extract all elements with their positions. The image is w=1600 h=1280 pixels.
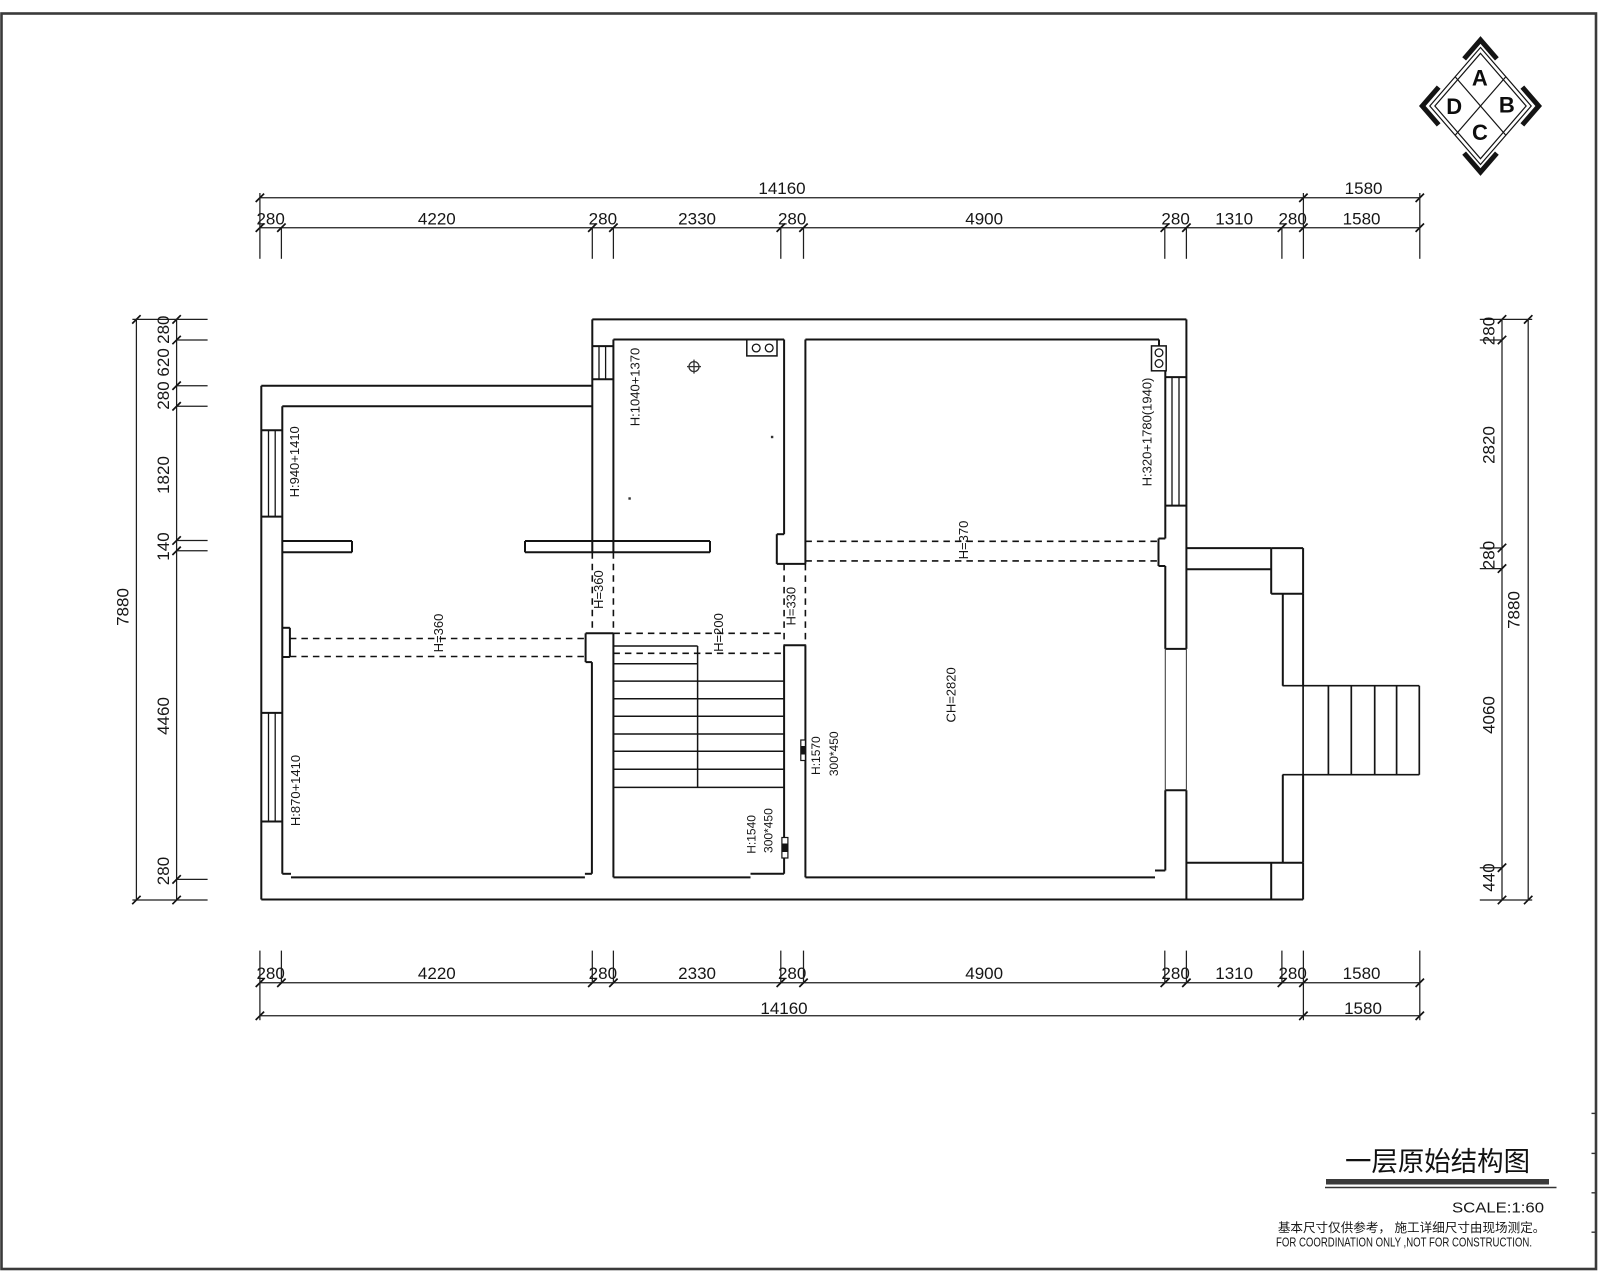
svg-text:H:1540: H:1540	[745, 815, 759, 854]
svg-text:280: 280	[778, 964, 806, 983]
svg-text:H:870+1410: H:870+1410	[288, 755, 303, 826]
svg-text:2820: 2820	[1480, 426, 1499, 464]
svg-text:C: C	[1472, 120, 1488, 145]
svg-text:620: 620	[154, 348, 173, 376]
svg-text:H=360: H=360	[591, 570, 606, 609]
svg-text:1580: 1580	[1343, 210, 1381, 229]
svg-text:4220: 4220	[418, 964, 456, 983]
svg-text:A: A	[1472, 66, 1488, 91]
svg-text:D: D	[1446, 94, 1462, 119]
svg-text:4900: 4900	[965, 964, 1003, 983]
svg-text:1820: 1820	[154, 456, 173, 494]
svg-text:1580: 1580	[1344, 999, 1382, 1018]
svg-text:280: 280	[1278, 964, 1306, 983]
svg-text:280: 280	[1480, 317, 1499, 345]
svg-text:2330: 2330	[678, 210, 716, 229]
svg-text:1580: 1580	[1345, 179, 1383, 198]
svg-text:4060: 4060	[1480, 696, 1499, 734]
svg-text:280: 280	[1161, 210, 1189, 229]
svg-text:H=330: H=330	[783, 587, 798, 626]
svg-text:7880: 7880	[1505, 591, 1524, 629]
svg-text:440: 440	[1480, 863, 1499, 891]
svg-text:4220: 4220	[418, 210, 456, 229]
svg-text:7880: 7880	[114, 588, 133, 626]
svg-text:1310: 1310	[1215, 210, 1253, 229]
svg-text:4460: 4460	[154, 697, 173, 735]
svg-text:300*450: 300*450	[827, 731, 841, 776]
svg-text:H:320+1780(1940): H:320+1780(1940)	[1140, 378, 1155, 487]
svg-text:SCALE:1:60: SCALE:1:60	[1452, 1200, 1544, 1217]
svg-text:280: 280	[256, 964, 284, 983]
svg-text:1580: 1580	[1343, 964, 1381, 983]
svg-text:280: 280	[778, 210, 806, 229]
svg-text:280: 280	[154, 316, 173, 344]
svg-text:2330: 2330	[678, 964, 716, 983]
svg-text:280: 280	[154, 381, 173, 409]
svg-text:4900: 4900	[965, 210, 1003, 229]
svg-text:CH=2820: CH=2820	[943, 667, 958, 722]
svg-text:B: B	[1499, 93, 1515, 118]
svg-text:H=370: H=370	[956, 521, 971, 560]
svg-text:280: 280	[589, 210, 617, 229]
svg-text:280: 280	[1161, 964, 1189, 983]
svg-text:14160: 14160	[758, 179, 805, 198]
svg-text:1310: 1310	[1215, 964, 1253, 983]
svg-text:H=360: H=360	[431, 614, 446, 653]
svg-text:基本尺寸仅供参考， 施工详细尺寸由现场测定。: 基本尺寸仅供参考， 施工详细尺寸由现场测定。	[1278, 1220, 1546, 1235]
svg-text:280: 280	[154, 857, 173, 885]
svg-text:H:940+1410: H:940+1410	[287, 426, 302, 497]
svg-text:H:1040+1370: H:1040+1370	[627, 348, 642, 426]
svg-text:FOR COORDINATION ONLY ,NOT FOR: FOR COORDINATION ONLY ,NOT FOR CONSTRUCT…	[1276, 1235, 1532, 1250]
svg-text:280: 280	[1278, 210, 1306, 229]
svg-text:140: 140	[154, 532, 173, 560]
svg-text:H:1570: H:1570	[809, 736, 823, 775]
svg-text:280: 280	[256, 210, 284, 229]
svg-text:一层原始结构图: 一层原始结构图	[1345, 1147, 1530, 1177]
svg-text:280: 280	[1480, 541, 1499, 569]
svg-text:H=200: H=200	[711, 613, 726, 652]
svg-text:300*450: 300*450	[762, 808, 776, 853]
svg-text:14160: 14160	[760, 999, 807, 1018]
